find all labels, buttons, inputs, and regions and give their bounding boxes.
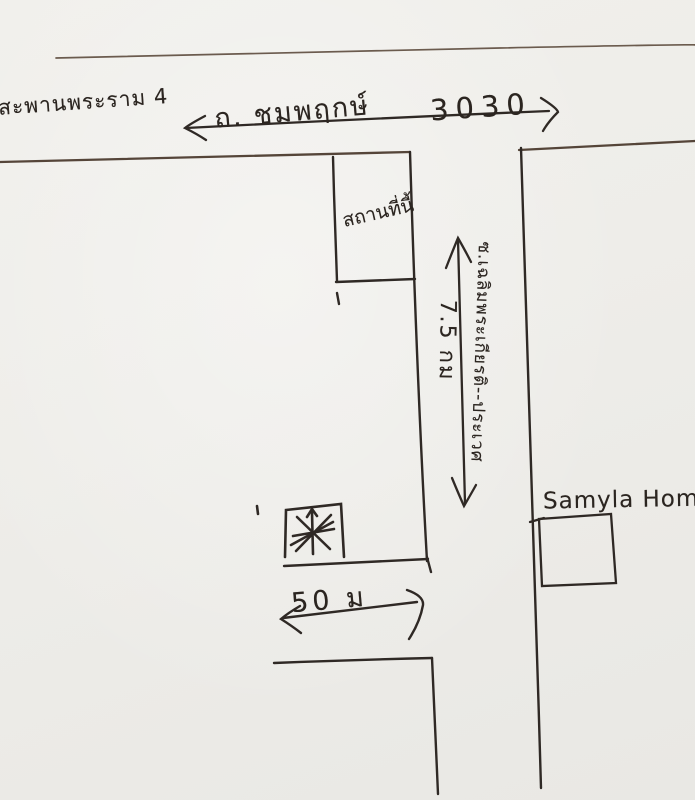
top-road-upper-edge [56,45,695,58]
star-icon [291,509,334,554]
road-number-label: 3030 [429,86,533,127]
distance-m-label: 50 ม [289,575,369,625]
distance-km-label: 7.5 กม [430,299,466,381]
frontage-line [284,557,431,572]
samyla-home-label: Samyla Home [543,486,695,515]
paper-sheet: สะพานพระราม 4 ถ. ชมพฤกษ์ 3030 สถานที่นี้… [0,0,695,800]
samyla-home-box [530,514,616,586]
top-road-lower-edges [0,141,695,162]
soi-right-edge [521,148,541,788]
bottom-boundary-line [274,658,438,794]
